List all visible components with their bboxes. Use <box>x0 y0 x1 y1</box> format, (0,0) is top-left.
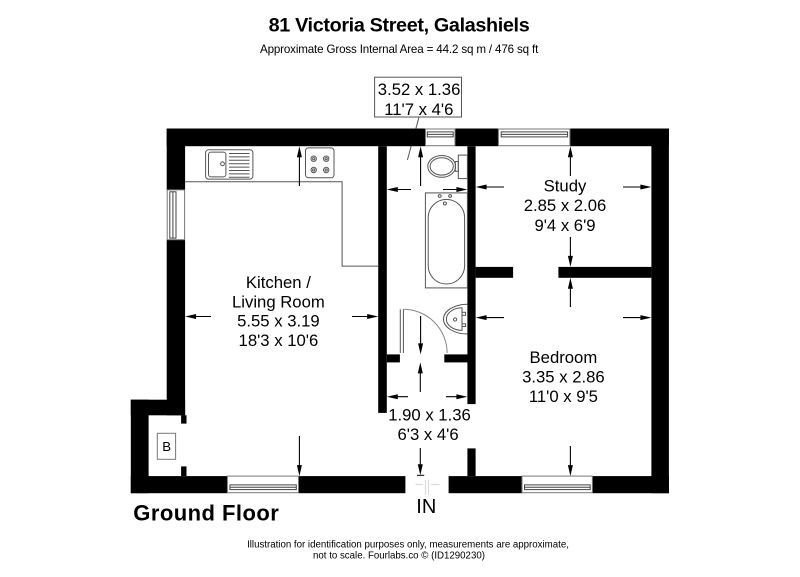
svg-text:3.35 x 2.86: 3.35 x 2.86 <box>522 368 605 387</box>
svg-text:6'3 x 4'6: 6'3 x 4'6 <box>398 425 459 444</box>
svg-text:5.55 x 3.19: 5.55 x 3.19 <box>237 311 320 330</box>
svg-text:1.90 x 1.36: 1.90 x 1.36 <box>388 406 471 425</box>
svg-text:11'0 x 9'5: 11'0 x 9'5 <box>529 387 598 406</box>
svg-text:11'7 x 4'6: 11'7 x 4'6 <box>384 100 453 119</box>
svg-text:Illustration for identificatio: Illustration for identification purposes… <box>247 540 569 551</box>
svg-text:3.52 x 1.36: 3.52 x 1.36 <box>378 80 461 99</box>
svg-text:9'4 x 6'9: 9'4 x 6'9 <box>534 216 595 235</box>
svg-text:not to scale. Fourlabs.co © (I: not to scale. Fourlabs.co © (ID1290230) <box>313 551 485 562</box>
svg-text:81 Victoria Street, Galashiels: 81 Victoria Street, Galashiels <box>269 15 530 37</box>
svg-text:IN: IN <box>416 496 436 518</box>
svg-text:Approximate Gross Internal Are: Approximate Gross Internal Area = 44.2 s… <box>260 43 539 56</box>
svg-text:2.85 x 2.06: 2.85 x 2.06 <box>524 196 607 215</box>
svg-text:Bedroom: Bedroom <box>530 348 598 367</box>
svg-text:Living Room: Living Room <box>232 293 325 312</box>
svg-text:Ground Floor: Ground Floor <box>133 500 279 525</box>
svg-text:Kitchen /: Kitchen / <box>246 273 311 292</box>
svg-text:B: B <box>162 439 171 454</box>
svg-text:Study: Study <box>544 176 587 195</box>
svg-text:18'3 x 10'6: 18'3 x 10'6 <box>239 331 319 350</box>
